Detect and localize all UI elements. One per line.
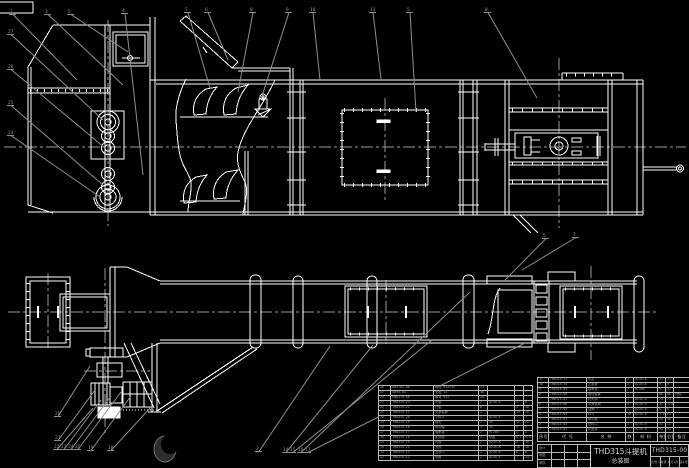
balloon-bottom-4: 23 <box>60 400 101 450</box>
balloon-number: 4 <box>122 8 125 14</box>
balloon-top-3: 5 <box>67 9 128 52</box>
balloon-number: 3 <box>45 9 48 15</box>
leader-line <box>71 15 128 53</box>
centerlines <box>4 20 686 436</box>
leader-line <box>58 366 90 417</box>
balloon-number: 6 <box>205 7 208 13</box>
info-cell: 比例 1:10 <box>651 457 661 468</box>
signature-grid: 设计制图审核 <box>537 444 592 468</box>
bom-cell: 7 <box>514 456 523 461</box>
info-cells: 比例 1:10数量 1共1张第1张 <box>650 456 689 468</box>
bom-header-cell: 单重 <box>658 433 666 442</box>
leader-line <box>313 13 320 81</box>
balloon-top-10: 11 <box>369 7 381 79</box>
bom-header-cell: 材 料 <box>634 433 658 442</box>
balloon-number: 8 <box>250 7 253 13</box>
bom-cell: 2 <box>479 456 488 461</box>
drawing-subtitle: 总装图 <box>591 456 650 465</box>
elevation-view <box>0 2 684 233</box>
balloon-number: 16 <box>298 447 304 453</box>
leader-line <box>11 136 100 198</box>
balloon-number: 7 <box>573 232 576 238</box>
balloon-top-2: 3 <box>44 9 123 85</box>
bom-cell: THD315-12 <box>391 456 434 461</box>
bom-cell: 14 <box>523 456 532 461</box>
bom-cell: Q235-A <box>488 456 515 461</box>
signature-cell: 审核 <box>538 460 552 468</box>
bom-cell: 12 <box>379 456 391 461</box>
leader-line <box>410 13 416 113</box>
balloon-number: 24 <box>8 130 14 136</box>
balloon-number: 10 <box>310 7 316 13</box>
balloon-number: 17 <box>305 447 311 453</box>
balloon-mid-2: 7 <box>522 232 579 270</box>
leader-line <box>373 13 381 80</box>
bom-header-cell: 总重 <box>666 433 674 442</box>
bom-header-cell: 备注 <box>674 433 689 442</box>
head-drive-section <box>485 73 684 184</box>
bom-header-cell: 数 <box>626 433 634 442</box>
balloon-mid-1: 5 <box>505 233 549 280</box>
balloon-top-1: 2 <box>9 9 77 80</box>
leader-line <box>57 408 93 450</box>
balloon-number: 8 <box>485 7 488 13</box>
balloon-number: 5 <box>68 9 71 15</box>
balloon-number: 5 <box>543 233 546 239</box>
signature-cell <box>552 452 565 460</box>
balloon-number: 27 <box>8 29 14 35</box>
signature-cell <box>552 460 565 468</box>
balloon-number: 24 <box>68 444 74 450</box>
balloon-number: 7 <box>185 7 188 13</box>
balloon-number: 25 <box>75 444 81 450</box>
balloon-number: 15 <box>290 447 296 453</box>
balloon-number: 9 <box>286 7 289 13</box>
leader-line <box>488 13 537 99</box>
bom-cell: 侧板 <box>434 456 479 461</box>
balloon-number: 25 <box>8 100 14 106</box>
signature-cell <box>552 445 565 453</box>
balloon-top-7: 8 <box>238 7 256 92</box>
leader-line <box>11 35 103 121</box>
signature-cell <box>565 452 578 460</box>
balloon-number: 20 <box>55 411 61 417</box>
leader-line <box>262 13 289 97</box>
cad-sheet: 2354768910115827262524572021222324251918… <box>0 0 689 468</box>
feed-chute <box>180 16 290 71</box>
balloon-number: 19 <box>88 445 94 451</box>
balloon-bottom-1: 20 <box>54 366 90 417</box>
leader-line <box>188 13 210 89</box>
bom-header-cell: 名 称 <box>587 433 626 442</box>
signature-cell: 制图 <box>538 452 552 460</box>
leader-line <box>208 13 228 61</box>
leader-line <box>522 238 576 271</box>
drawing-title: THD315斗提机 <box>591 447 650 456</box>
bom-table-left: 26GB5782-86螺栓 M12×452425GB95-85垫圈 124824… <box>378 385 533 461</box>
balloon-top-8: 9 <box>262 7 292 96</box>
cut-frame <box>0 2 33 13</box>
balloon-top-11: 5 <box>406 7 416 112</box>
balloon-number: 18 <box>108 445 114 451</box>
balloon-number: 21 <box>55 435 61 441</box>
bom-header-cell: 代 号 <box>549 433 587 442</box>
balloon-bottom-5: 24 <box>67 396 111 450</box>
balloon-number: 11 <box>370 7 376 13</box>
info-cell: 数量 1 <box>660 457 670 468</box>
balloon-number: 26 <box>8 64 14 70</box>
info-cell: 第1张 <box>679 457 689 468</box>
leader-line <box>91 396 131 451</box>
balloon-left-4: 24 <box>7 130 100 197</box>
bom-table-right: 11THD315-11机罩1Q235-A131310THD315-10上盖板1Q… <box>537 377 689 442</box>
balloon-top-5: 7 <box>184 7 210 88</box>
balloon-top-6: 6 <box>204 7 228 60</box>
leader-line <box>13 15 77 81</box>
info-cell: 共1张 <box>670 457 680 468</box>
bom-header-cell: 序号 <box>538 433 549 442</box>
balloon-top-9: 10 <box>309 7 320 80</box>
balloon-number: 5 <box>407 7 410 13</box>
balloon-number: 14 <box>283 447 289 453</box>
title-cell: THD315斗提机 总装图 <box>590 444 651 468</box>
balloon-number: 22 <box>54 444 60 450</box>
signature-cell: 设计 <box>538 445 552 453</box>
plan-drive-unit <box>86 343 257 418</box>
leader-line <box>125 14 143 176</box>
crescent-mark <box>154 434 179 462</box>
balloon-number: 2 <box>10 9 13 15</box>
balloon-number: 3 <box>256 446 259 452</box>
signature-cell <box>565 445 578 453</box>
balloon-bottom-7: 19 <box>87 396 131 451</box>
signature-cell <box>565 460 578 468</box>
balloon-number: 23 <box>61 444 67 450</box>
plan-casing <box>160 275 644 352</box>
